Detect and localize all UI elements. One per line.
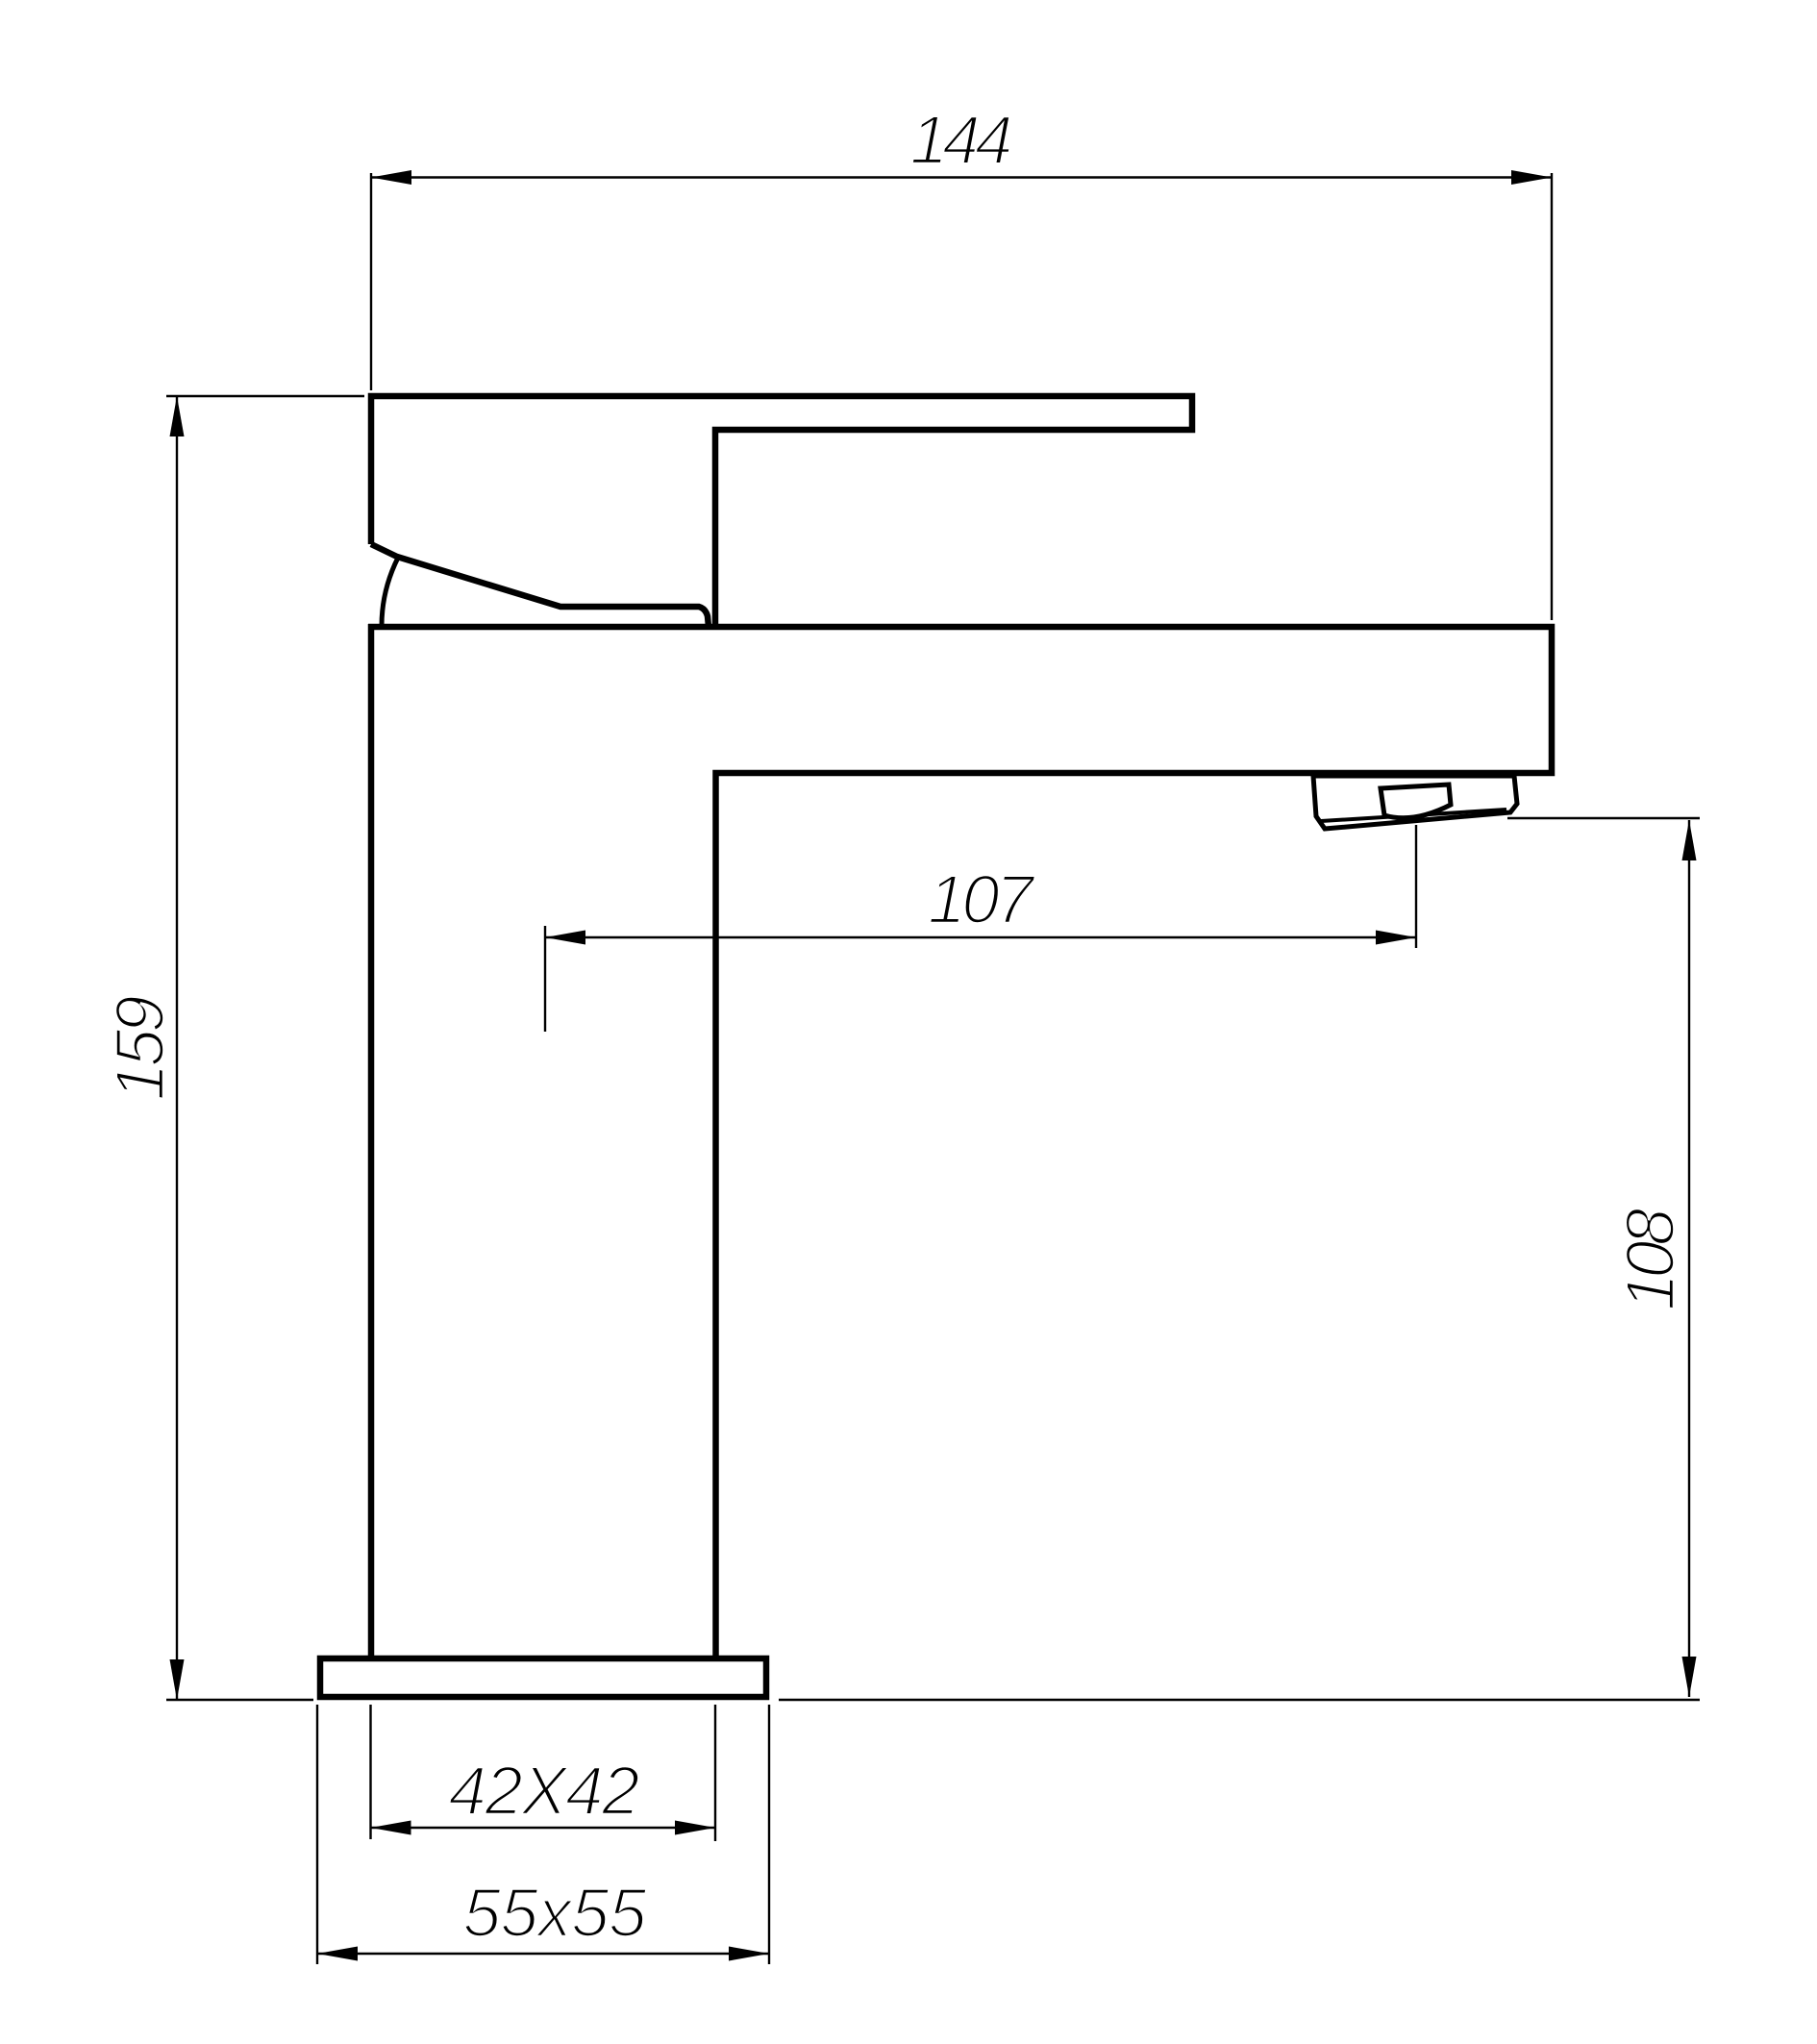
svg-text:107: 107 <box>928 862 1036 938</box>
svg-text:42X42: 42X42 <box>449 1754 640 1830</box>
svg-text:144: 144 <box>910 103 1013 179</box>
svg-text:159: 159 <box>103 995 179 1101</box>
svg-text:55x55: 55x55 <box>463 1876 648 1952</box>
svg-text:108: 108 <box>1613 1208 1689 1311</box>
